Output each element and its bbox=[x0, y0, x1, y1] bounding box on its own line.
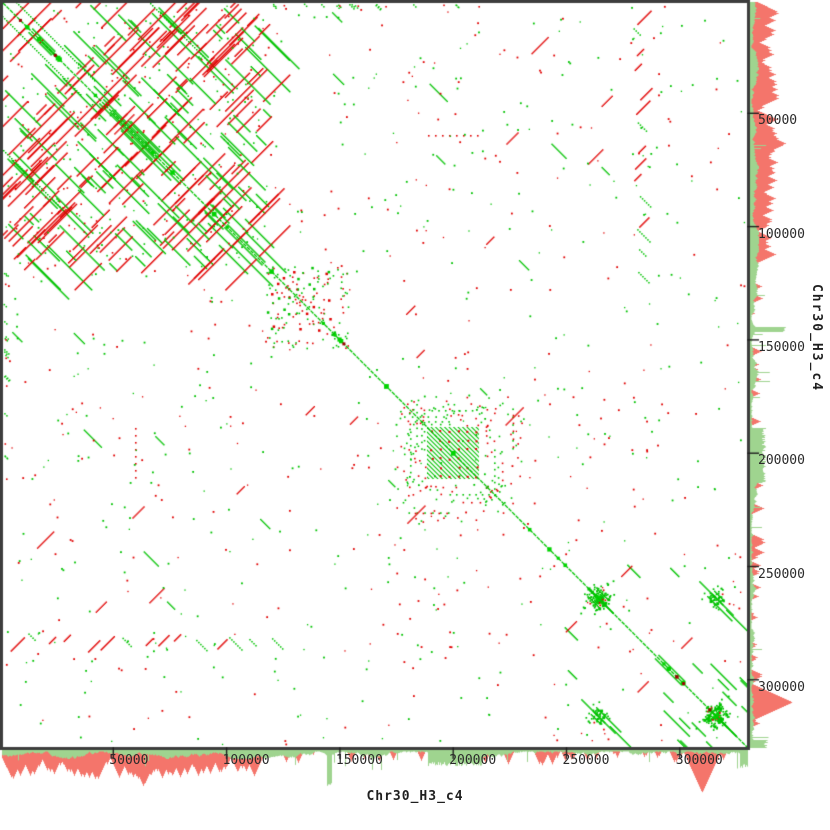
y-tick-label: 300000 bbox=[758, 681, 805, 694]
y-tick-label: 50000 bbox=[758, 114, 797, 127]
x-tick-label: 50000 bbox=[109, 754, 148, 767]
dotplot-panel: 50000100000150000200000250000300000 5000… bbox=[0, 0, 830, 830]
y-tick-label: 200000 bbox=[758, 454, 805, 467]
x-axis-title: Chr30_H3_c4 bbox=[0, 789, 830, 804]
x-tick-label: 150000 bbox=[336, 754, 383, 767]
x-tick-label: 200000 bbox=[449, 754, 496, 767]
x-tick-label: 100000 bbox=[223, 754, 270, 767]
y-axis-title: Chr30_H3_c4 bbox=[809, 284, 824, 392]
y-tick-label: 100000 bbox=[758, 228, 805, 241]
y-tick-label: 150000 bbox=[758, 341, 805, 354]
x-tick-label: 250000 bbox=[563, 754, 610, 767]
dotplot-canvas bbox=[0, 0, 830, 830]
y-tick-label: 250000 bbox=[758, 568, 805, 581]
x-tick-label: 300000 bbox=[676, 754, 723, 767]
